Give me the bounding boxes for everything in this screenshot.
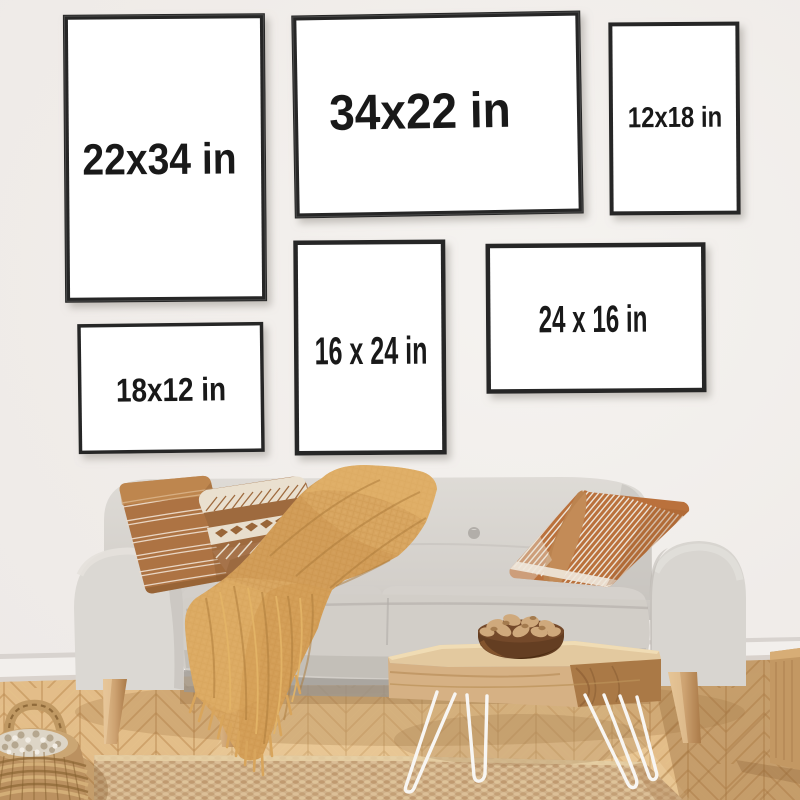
svg-text:24 x 16 in: 24 x 16 in	[538, 297, 647, 341]
svg-text:18x12 in: 18x12 in	[116, 371, 227, 409]
svg-text:34x22 in: 34x22 in	[329, 83, 511, 141]
svg-text:16 x 24 in: 16 x 24 in	[315, 328, 428, 373]
svg-text:12x18 in: 12x18 in	[628, 100, 723, 133]
svg-text:22x34 in: 22x34 in	[82, 133, 237, 184]
